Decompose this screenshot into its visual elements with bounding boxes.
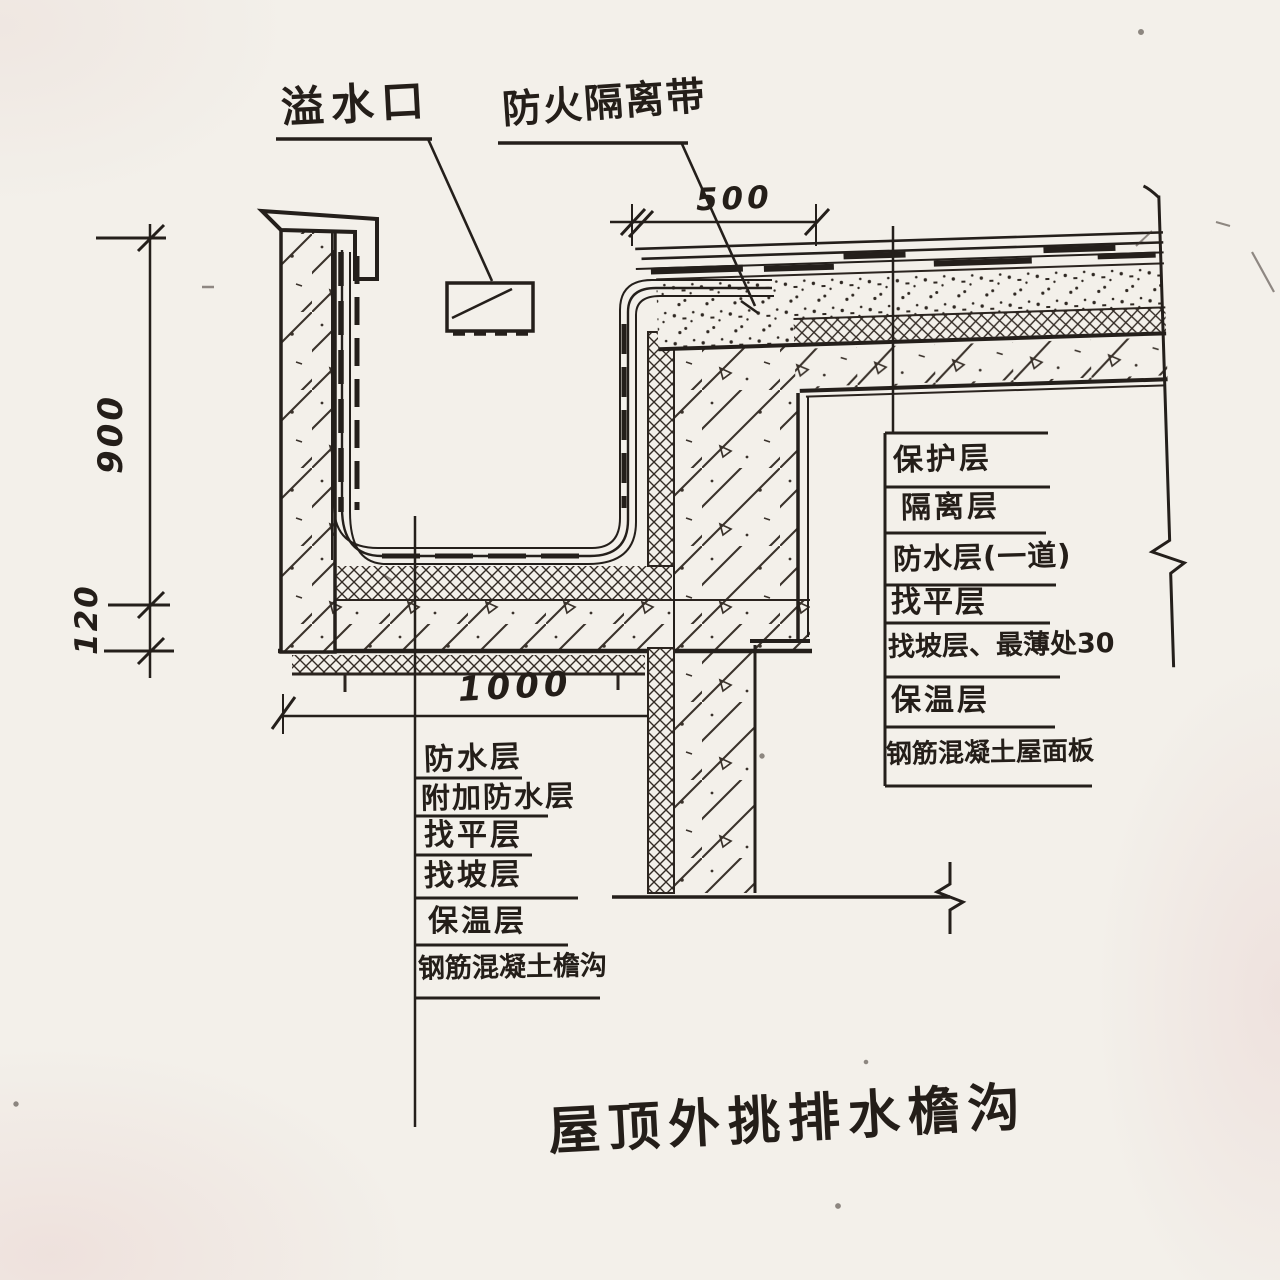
overflow-outlet xyxy=(447,283,533,334)
roof-layer-label: 保温层 xyxy=(891,686,990,716)
gutter-layer-label: 附加防水层 xyxy=(421,782,576,814)
dim-1000: 1000 xyxy=(457,667,573,707)
gutter-layer-label: 钢筋混凝土檐沟 xyxy=(418,952,607,982)
gutter-layer-label: 找平层 xyxy=(424,821,523,851)
gutter-slab-hatch xyxy=(286,600,810,650)
overflow-leader xyxy=(428,139,492,281)
roof-layer-label: 找平层 xyxy=(891,588,987,618)
gutter-layer-label: 保温层 xyxy=(428,907,527,937)
roof-layer-label: 保护层 xyxy=(893,444,993,477)
overflow-callout: 溢水口 xyxy=(280,80,432,131)
drawing-sheet: 溢水口 防火隔离带 500 900 120 1000 保护层 隔离层 防水层(一… xyxy=(0,0,1280,1280)
gutter-slope-layer-hatch xyxy=(336,566,672,600)
roof-layer-label: 隔离层 xyxy=(901,492,1001,524)
roof-layer-label: 找坡层、最薄处30 xyxy=(888,630,1115,661)
dim-120: 120 xyxy=(72,584,103,655)
dim-500: 500 xyxy=(695,183,773,217)
gutter-layer-label: 找坡层 xyxy=(424,860,524,892)
roof-layer-label: 防水层(一道) xyxy=(893,541,1072,575)
dim-900: 900 xyxy=(94,394,128,474)
gutter-layer-label: 防水层 xyxy=(424,742,524,775)
roof-layer-label: 钢筋混凝土屋面板 xyxy=(886,738,1094,768)
